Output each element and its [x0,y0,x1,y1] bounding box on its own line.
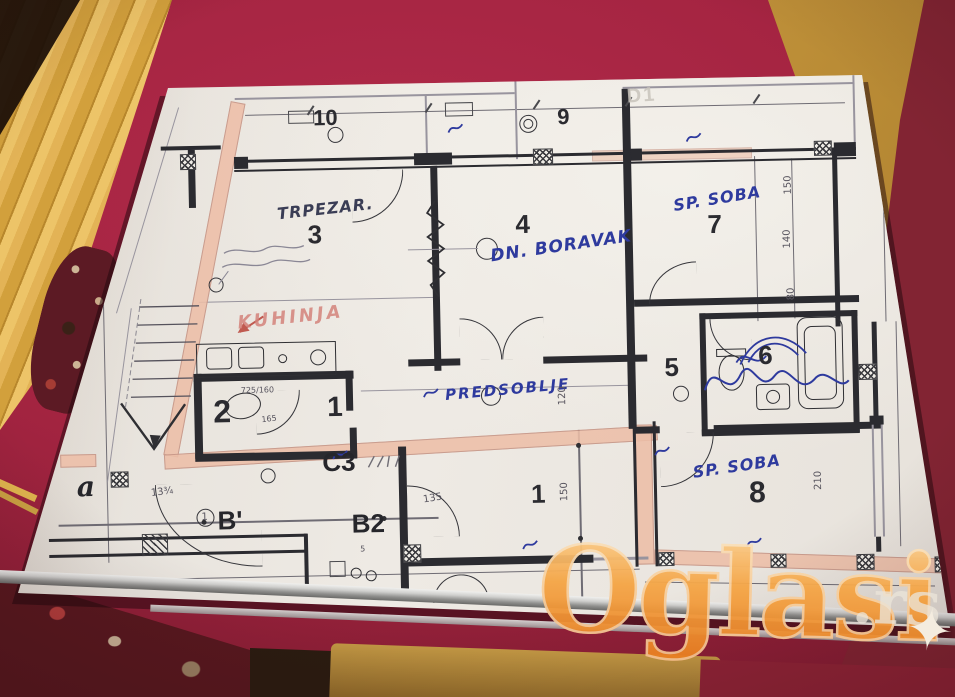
column-hatch [403,544,421,562]
dim-165: 165 [261,414,277,425]
pencil-line [199,297,435,303]
double-door-arc [459,317,502,360]
room-number-4: 4 [515,209,530,240]
small-circle [366,570,377,581]
plan-line [235,92,515,99]
plan-line [623,82,855,88]
blue-scribble-arc [734,325,815,372]
room-number-6: 6 [758,340,773,371]
wall-room8-top [634,426,660,434]
insulation-zigzag-icon [425,201,447,297]
circle-marker [260,468,275,483]
dim-150: 150 [782,175,793,194]
room-label-predsoblje: PREDSOBLJE [444,375,571,404]
dim-5: 5 [360,544,365,553]
room-number-10: 10 [313,105,338,132]
blue-check-mark [652,443,672,459]
door-arc [648,261,697,304]
axis-label-c3: C3 [322,447,356,479]
circle-marker [673,386,689,402]
column-hatch [110,471,128,487]
sparkle-icon: ✦ [901,593,955,667]
room-label-dnevni-boravak: DN. BORAVAK [489,226,633,266]
room-number-3: 3 [307,219,322,250]
room-number-5: 5 [664,352,679,383]
axis-label-b-prime: B' [217,505,243,537]
dim-210: 210 [813,471,824,490]
window-block [869,416,883,425]
pencil-marks-c3 [364,451,412,472]
column-hatch [142,534,168,557]
wall-pier [414,152,452,165]
room-number-1-lower: 1 [531,479,546,510]
blue-check-mark [520,537,540,553]
window-line [872,422,876,537]
window-line [881,422,885,537]
dim-80: 80 [786,287,797,300]
dim-150-lower: 150 [559,482,570,501]
sill-symbol [445,102,473,117]
small-box [329,561,345,577]
pencil-note-scribble [218,239,319,285]
dim-note-725-160: 725/160 [241,385,274,395]
wall-pier [234,157,248,169]
axis-label-b2: B2 [351,508,385,540]
room-number-7: 7 [707,209,722,240]
blue-check-mark [683,129,703,145]
dim-120: 120 [557,386,568,405]
stairs-arrow-icon [111,394,196,458]
room-number-2: 2 [213,393,232,430]
plan-line [425,96,428,158]
room-number-9: 9 [557,104,570,130]
door-arc [256,390,301,435]
dim-140: 140 [782,229,793,248]
small-circle [351,567,362,578]
column-hatch [814,141,832,156]
photo-of-floor-plan: 10 9 TRPEZAR. 3 4 DN. BORAVAK SP. SOBA 7… [0,0,955,697]
dim-line [896,321,902,546]
blue-check-mark [445,120,465,136]
double-door-arc [501,317,544,360]
circled-number: 1 [201,512,208,523]
dim-dot [576,443,581,448]
ghost-text-bleedthrough: D1 [626,83,657,108]
dim-tick [753,94,760,104]
wall-room4-south [408,358,460,366]
wall-bottom-left [49,550,307,558]
wall-bath2-right [345,371,353,411]
room-number-1: 1 [327,391,343,423]
axis-label-a: a [76,470,95,503]
wall-room4-7 [622,89,637,429]
column-hatch [180,154,196,170]
wall-pier [834,142,856,156]
room-label-kuhinja: KUHINJA [236,301,344,333]
blue-check-mark [421,385,441,401]
pink-wall-stub [60,454,96,468]
column-hatch [858,364,876,380]
room-number-8: 8 [749,476,766,510]
sill-symbol [288,110,314,124]
column-hatch [533,148,553,164]
sink-bowl [238,346,264,369]
